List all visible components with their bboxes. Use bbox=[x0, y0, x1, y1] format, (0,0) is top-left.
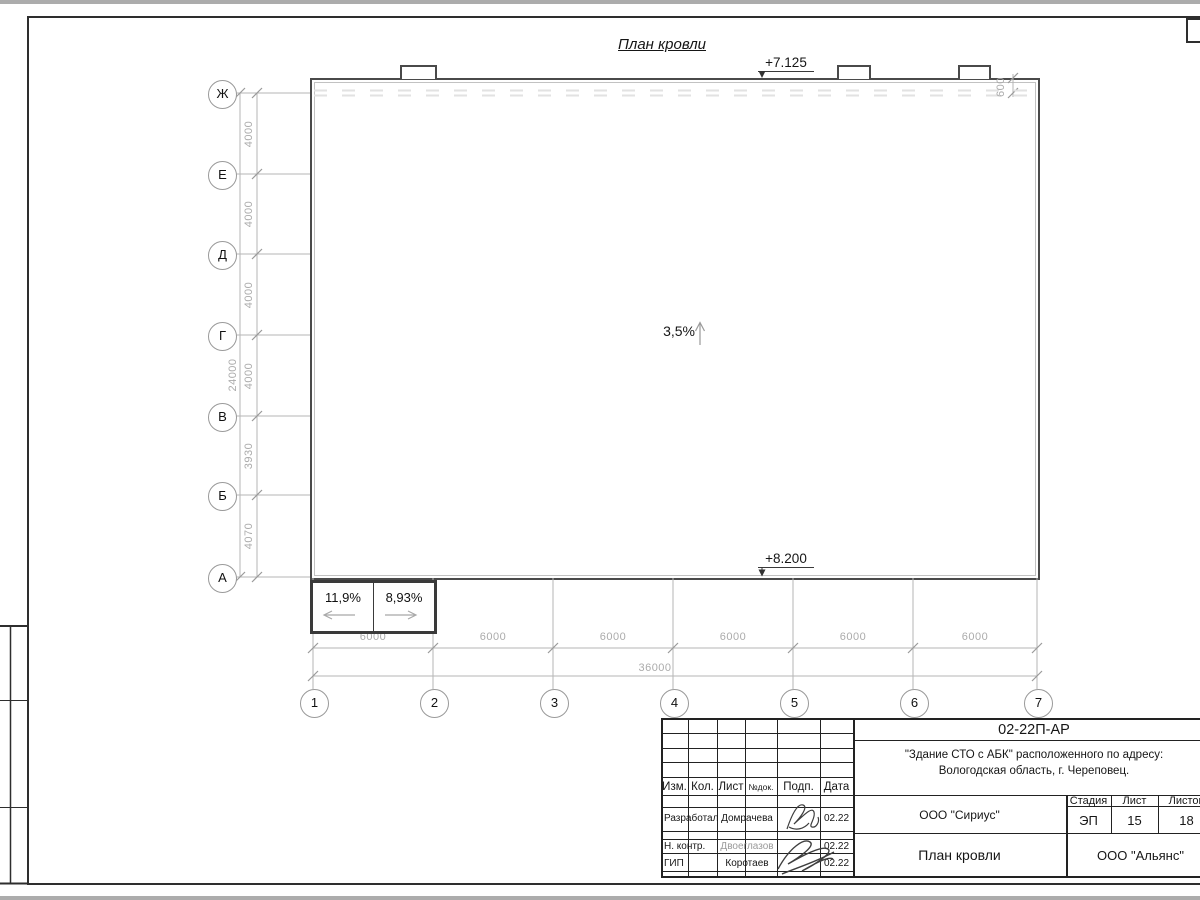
stamp-date: 02.22 bbox=[820, 810, 853, 826]
stamp-line bbox=[661, 853, 853, 854]
side-stamp-lines bbox=[0, 626, 27, 884]
stamp-col-header: Подп. bbox=[777, 779, 820, 794]
stamp-list-label: Лист bbox=[1111, 795, 1158, 807]
stamp-object-line2: Вологодская область, г. Череповец. bbox=[853, 761, 1200, 781]
stamp-firm: ООО "Альянс" bbox=[1066, 834, 1200, 876]
stamp-line bbox=[717, 718, 718, 878]
axis-bubble-col: 7 bbox=[1024, 689, 1053, 718]
dim-label: 6000 bbox=[945, 631, 1005, 643]
stamp-line bbox=[661, 718, 663, 878]
stamp-line bbox=[688, 718, 689, 878]
stamp-role: Н. контр. bbox=[664, 840, 716, 853]
dim-total-label: 36000 bbox=[615, 662, 695, 674]
stamp-line bbox=[661, 831, 853, 832]
stamp-stage-value: ЭП bbox=[1066, 807, 1111, 833]
stamp-line bbox=[661, 762, 853, 763]
stamp-col-header: Дата bbox=[820, 779, 853, 794]
stamp-line bbox=[777, 718, 778, 878]
slope-left-value: 11,9% bbox=[313, 583, 374, 631]
edge-offset-label: 600 bbox=[995, 69, 1007, 105]
axis-bubble-row: Е bbox=[208, 161, 237, 190]
stamp-name: Двоеглазов bbox=[717, 840, 777, 853]
stamp-col-header: Изм. bbox=[661, 779, 688, 794]
axis-bubble-row: Б bbox=[208, 482, 237, 511]
stamp-doc-number: 02-22П-АР bbox=[853, 719, 1200, 740]
stamp-date: 02.22 bbox=[820, 855, 853, 871]
stamp-sheet-name: План кровли bbox=[853, 834, 1066, 876]
dim-label: 3930 bbox=[243, 434, 255, 478]
axis-bubble-col: 2 bbox=[420, 689, 449, 718]
roof-hidden-line bbox=[314, 91, 1036, 96]
stamp-line bbox=[661, 876, 1200, 878]
drawing-sheet: План кровли bbox=[0, 0, 1200, 900]
elevation-top-label: +7.125 bbox=[758, 55, 814, 72]
slope-legend-box: 11,9% 8,93% bbox=[310, 580, 437, 634]
stamp-line bbox=[820, 718, 821, 878]
dim-label: 4070 bbox=[243, 514, 255, 558]
axis-bubble-row: Д bbox=[208, 241, 237, 270]
axis-bubble-row: В bbox=[208, 403, 237, 432]
stamp-org: ООО "Сириус" bbox=[853, 796, 1066, 833]
dim-label: 4000 bbox=[243, 112, 255, 156]
dim-label: 4000 bbox=[243, 192, 255, 236]
axis-bubble-col: 3 bbox=[540, 689, 569, 718]
dim-total-label: 24000 bbox=[227, 347, 239, 403]
corner-stamp-box bbox=[1186, 18, 1200, 43]
dim-label: 6000 bbox=[583, 631, 643, 643]
stamp-line bbox=[661, 748, 853, 749]
stamp-line bbox=[661, 733, 853, 734]
axis-bubble-col: 1 bbox=[300, 689, 329, 718]
elevation-bottom-label: +8.200 bbox=[758, 551, 814, 568]
slope-label: 3,5% bbox=[640, 323, 695, 339]
stamp-list-value: 15 bbox=[1111, 807, 1158, 833]
stamp-name: Коротаев bbox=[717, 855, 777, 871]
stamp-total-value: 18 bbox=[1158, 807, 1200, 833]
stamp-line bbox=[661, 807, 853, 808]
stamp-name: Домрачева bbox=[717, 810, 777, 826]
stamp-stage-label: Стадия bbox=[1066, 795, 1111, 807]
stamp-line bbox=[661, 777, 853, 778]
dim-label: 6000 bbox=[823, 631, 883, 643]
stamp-role: Разработал bbox=[664, 810, 716, 826]
axis-bubble-col: 4 bbox=[660, 689, 689, 718]
stamp-role: ГИП bbox=[664, 855, 716, 871]
dim-label: 4000 bbox=[243, 273, 255, 317]
axis-bubble-row: А bbox=[208, 564, 237, 593]
stamp-line bbox=[661, 871, 853, 872]
stamp-date: 02.22 bbox=[820, 840, 853, 853]
stamp-col-header: №док. bbox=[745, 779, 777, 794]
drawing-title: План кровли bbox=[577, 36, 747, 53]
axis-bubble-row: Ж bbox=[208, 80, 237, 109]
dim-label: 4000 bbox=[243, 354, 255, 398]
dim-label: 6000 bbox=[463, 631, 523, 643]
stamp-line bbox=[853, 740, 1200, 741]
axis-bubble-col: 5 bbox=[780, 689, 809, 718]
axis-bubble-col: 6 bbox=[900, 689, 929, 718]
slope-right-value: 8,93% bbox=[374, 583, 434, 631]
stamp-line bbox=[745, 718, 746, 878]
dim-label: 6000 bbox=[703, 631, 763, 643]
stamp-col-header: Кол. bbox=[688, 779, 717, 794]
stamp-col-header: Лист bbox=[717, 779, 745, 794]
stamp-total-label: Листов bbox=[1158, 795, 1200, 807]
